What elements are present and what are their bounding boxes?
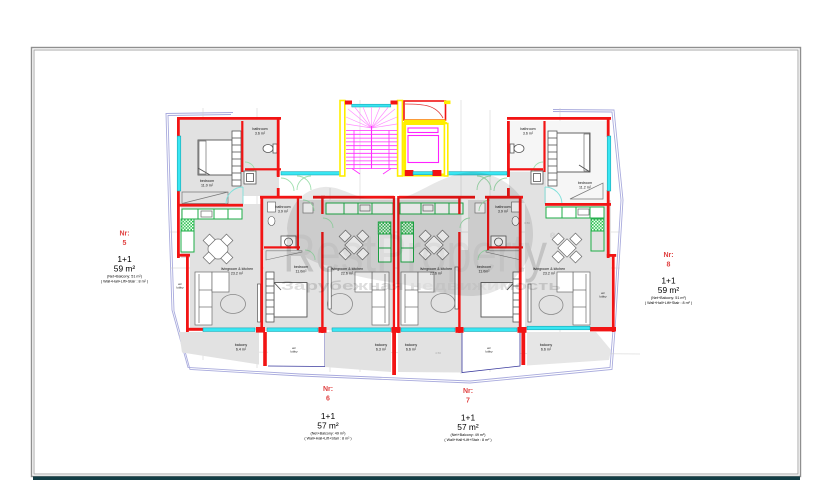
svg-text:1+1: 1+1 bbox=[661, 276, 676, 286]
svg-text:6.6 m²: 6.6 m² bbox=[541, 348, 552, 352]
svg-text:1+1: 1+1 bbox=[117, 254, 132, 264]
svg-text:®: ® bbox=[550, 232, 556, 240]
svg-text:1+1: 1+1 bbox=[321, 411, 336, 421]
svg-text:(Net+Balcony: 51 m²): (Net+Balcony: 51 m²) bbox=[107, 275, 142, 279]
svg-text:( Wall+Hall+Lift+Stair : 8 m²: ( Wall+Hall+Lift+Stair : 8 m² ) bbox=[645, 301, 692, 305]
svg-text:Nr:: Nr: bbox=[463, 388, 473, 395]
svg-text:6.3 m²: 6.3 m² bbox=[376, 348, 387, 352]
svg-text:5: 5 bbox=[123, 240, 127, 247]
svg-text:23.2 m²: 23.2 m² bbox=[231, 272, 244, 276]
svg-text:8: 8 bbox=[667, 262, 671, 269]
svg-text:lobby: lobby bbox=[290, 350, 298, 354]
svg-text:Nr:: Nr: bbox=[323, 386, 333, 393]
svg-text:RestProperty: RestProperty bbox=[283, 224, 547, 284]
svg-text:Зарубежная недвижимость: Зарубежная недвижимость bbox=[281, 278, 561, 293]
svg-text:3.6 m²: 3.6 m² bbox=[523, 132, 534, 136]
svg-text:bathroom: bathroom bbox=[275, 205, 290, 209]
svg-text:3.6 m²: 3.6 m² bbox=[255, 132, 266, 136]
svg-text:lobby: lobby bbox=[599, 295, 607, 299]
svg-text:6.4 m²: 6.4 m² bbox=[236, 348, 247, 352]
svg-text:bathroom: bathroom bbox=[252, 127, 267, 131]
svg-text:(Net+Balcony: 49 m²): (Net+Balcony: 49 m²) bbox=[311, 432, 346, 436]
svg-text:balcony: balcony bbox=[235, 343, 248, 347]
svg-text:( Wall+Hall+Lift+Stair : 8 m²: ( Wall+Hall+Lift+Stair : 8 m² ) bbox=[444, 438, 491, 442]
svg-text:11.2 m²: 11.2 m² bbox=[579, 186, 592, 190]
svg-text:bedroom: bedroom bbox=[578, 181, 592, 185]
svg-text:( Wall+Hall+Lift+Stair : 8 m²: ( Wall+Hall+Lift+Stair : 8 m² ) bbox=[304, 437, 351, 441]
svg-text:1+1: 1+1 bbox=[461, 413, 476, 423]
svg-text:bathroom: bathroom bbox=[520, 127, 535, 131]
svg-text:(Net+Balcony: 49 m²): (Net+Balcony: 49 m²) bbox=[451, 433, 486, 437]
svg-text:( Wall+Hall+Lift+Stair : 8 m²: ( Wall+Hall+Lift+Stair : 8 m² ) bbox=[101, 280, 148, 284]
svg-text:7: 7 bbox=[466, 398, 470, 405]
svg-text:(Net+Balcony: 51 m²): (Net+Balcony: 51 m²) bbox=[651, 296, 686, 300]
svg-text:6: 6 bbox=[326, 396, 330, 403]
svg-text:59 m²: 59 m² bbox=[114, 264, 136, 274]
svg-text:balcony: balcony bbox=[405, 343, 418, 347]
svg-text:Nr:: Nr: bbox=[119, 231, 129, 238]
svg-text:bedroom: bedroom bbox=[200, 179, 214, 183]
svg-text:57 m²: 57 m² bbox=[317, 421, 339, 431]
svg-text:57 m²: 57 m² bbox=[457, 422, 479, 432]
svg-text:11.0 m²: 11.0 m² bbox=[201, 184, 214, 188]
svg-text:6.6 m²: 6.6 m² bbox=[406, 348, 417, 352]
svg-text:livingroom & kitchen: livingroom & kitchen bbox=[221, 267, 253, 271]
svg-text:balcony: balcony bbox=[540, 343, 553, 347]
svg-text:Nr:: Nr: bbox=[663, 252, 673, 259]
svg-text:lobby: lobby bbox=[176, 286, 184, 290]
svg-text:lobby: lobby bbox=[485, 350, 493, 354]
svg-text:4.50: 4.50 bbox=[435, 351, 441, 355]
svg-text:59 m²: 59 m² bbox=[658, 285, 680, 295]
svg-text:3.9 m²: 3.9 m² bbox=[278, 210, 289, 214]
svg-text:balcony: balcony bbox=[375, 343, 388, 347]
